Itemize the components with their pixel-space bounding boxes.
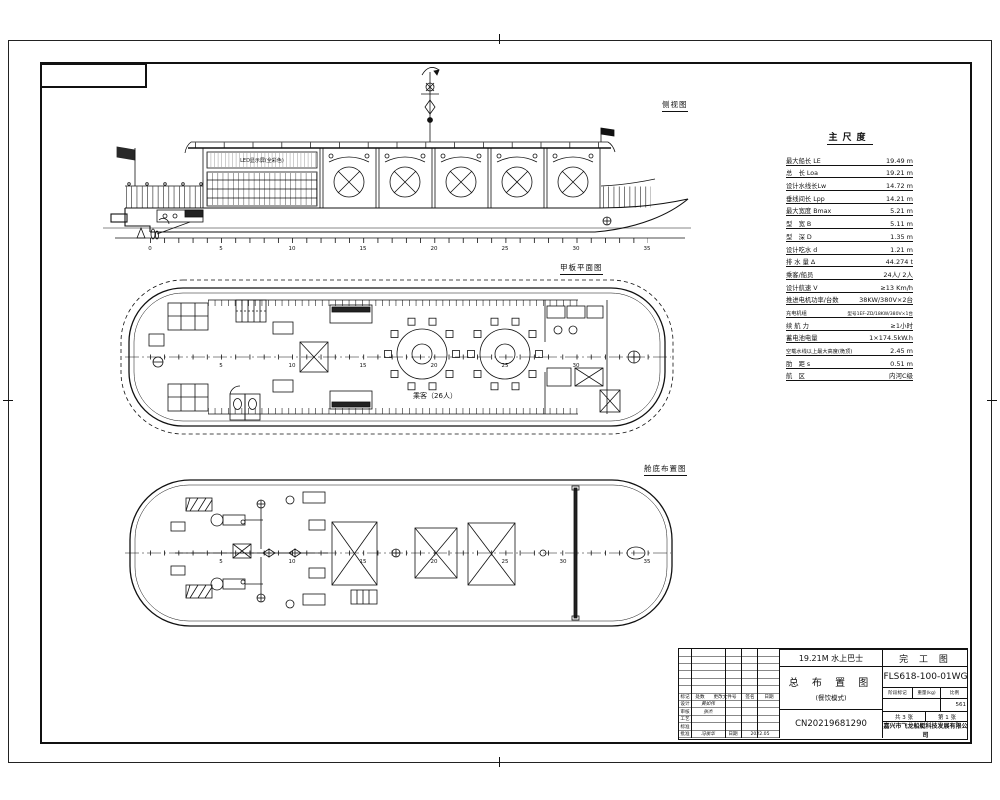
revision-header: 标记 处数 更改文件号 签名 日期 xyxy=(679,694,779,701)
aux-equipment xyxy=(171,492,377,605)
stern-flag-icon xyxy=(117,147,135,186)
svg-text:15: 15 xyxy=(360,559,367,565)
spec-row: 充电机组型号1EF-ZD/18KW/380V×1台 xyxy=(786,305,913,318)
led-screen-note: LED显示屏(全彩色) xyxy=(240,157,284,164)
scale-header: 比例 xyxy=(940,687,968,698)
center-mark xyxy=(499,34,500,44)
spec-row: 设计航速 V≥13 Km/h xyxy=(786,280,913,293)
mast-icon xyxy=(421,67,439,142)
svg-text:10: 10 xyxy=(289,363,296,369)
spec-row: 设计水线长Lw14.72 m xyxy=(786,178,913,191)
signature-row: 设计 黄如伟 xyxy=(679,701,779,708)
spec-row: 排 水 量 Δ44.274 t xyxy=(786,255,913,268)
sheet-page: 第 1 张 xyxy=(925,711,968,721)
spec-row: 最大宽度 Bmax5.21 m xyxy=(786,204,913,217)
bow-railing xyxy=(601,179,655,197)
svg-text:25: 25 xyxy=(502,559,509,565)
center-mark xyxy=(987,400,997,401)
signature-row: 批准 冯俊华 日期 2022.05 xyxy=(679,731,779,738)
svg-text:10: 10 xyxy=(289,246,296,252)
spec-row: 乘客/船员24人/ 2人 xyxy=(786,267,913,280)
aft-equipment xyxy=(600,390,620,412)
svg-text:20: 20 xyxy=(431,246,438,252)
spec-row: 蓄电池电量1×174.5kW.h xyxy=(786,331,913,344)
company-name: 嘉兴市飞龙船艇科技发展有限公司 xyxy=(882,721,968,738)
drawing-title: 总 布 置 图 (餐饮模式) xyxy=(779,666,882,709)
weight-header: 重量(kg) xyxy=(912,687,940,698)
spec-row: 航 区内河C级 xyxy=(786,369,913,382)
window-bays xyxy=(329,154,593,197)
svg-text:5: 5 xyxy=(219,246,223,252)
svg-text:20: 20 xyxy=(431,559,438,565)
title-block: 标记 处数 更改文件号 签名 日期 设计 黄如伟 审核 张杰 工艺 标准 xyxy=(678,648,968,740)
bow-fitting xyxy=(628,351,640,363)
spec-row: 推进电机功率/台数38KW/380V×2台 xyxy=(786,293,913,306)
spec-table-title: 主尺度 xyxy=(827,130,873,145)
svg-text:35: 35 xyxy=(644,559,651,565)
revision-grid: 标记 处数 更改文件号 签名 日期 设计 黄如伟 审核 张杰 工艺 标准 xyxy=(679,649,779,738)
center-mark xyxy=(499,757,500,767)
stern-railing xyxy=(125,183,203,197)
center-mark xyxy=(3,400,13,401)
spec-row: 型 宽 B5.11 m xyxy=(786,216,913,229)
valves-piping xyxy=(175,508,328,594)
drawing-sheet: 侧视图 甲板平面图 舱底布置图 xyxy=(0,0,1000,800)
roof xyxy=(185,142,615,153)
spec-row: 肋 距 s0.51 m xyxy=(786,356,913,369)
frame-ruler xyxy=(115,238,685,241)
drawing-subtitle: (餐饮模式) xyxy=(815,692,846,702)
deck-plan-drawing: 5 10 15 20 25 30 乘客（26人） xyxy=(113,272,683,442)
spec-row: 空载水线以上最大高度(桅顶)2.45 m xyxy=(786,343,913,356)
drawing-number: FLS618-100-01WG xyxy=(882,666,968,687)
serial-number: CN20219681290 xyxy=(779,709,882,738)
scale-value: 561 xyxy=(940,698,968,711)
spec-row: 设计吃水 d1.21 m xyxy=(786,242,913,255)
spec-row: 型 深 D1.35 m xyxy=(786,229,913,242)
svg-text:35: 35 xyxy=(644,246,651,252)
svg-text:15: 15 xyxy=(360,363,367,369)
dining-table xyxy=(385,318,460,390)
propulsion-gear xyxy=(137,210,203,239)
svg-text:25: 25 xyxy=(502,363,509,369)
roof-flag-icon xyxy=(601,128,614,142)
svg-text:5: 5 xyxy=(219,363,223,369)
helm-console xyxy=(149,334,164,367)
svg-text:10: 10 xyxy=(289,559,296,565)
stage-mark-header: 阶段标记 xyxy=(882,687,912,698)
signature-row: 标准 xyxy=(679,724,779,731)
signature-row: 审核 张杰 xyxy=(679,709,779,716)
main-dimensions-table: 主尺度 最大船长 LE19.49 m 总 长 Loa19.21 m 设计水线长L… xyxy=(786,130,913,381)
deck-capacity-note: 乘客（26人） xyxy=(413,391,457,400)
svg-text:20: 20 xyxy=(431,363,438,369)
svg-text:0: 0 xyxy=(148,246,152,252)
stairs xyxy=(236,300,266,322)
project-name: 19.21M 水上巴士 xyxy=(779,649,882,666)
svg-text:30: 30 xyxy=(573,363,580,369)
bilge-plan-drawing: 5 10 15 20 25 30 35 xyxy=(113,462,683,637)
stage-label: 完 工 图 xyxy=(882,649,968,666)
svg-text:5: 5 xyxy=(219,559,223,565)
frame-ruler-numbers: 0 5 10 15 20 25 30 35 xyxy=(148,246,651,252)
sheet-total: 共 3 张 xyxy=(882,711,925,721)
pumps xyxy=(257,496,294,608)
anchor-icon xyxy=(603,217,611,225)
spec-row: 续 航 力≥1小时 xyxy=(786,318,913,331)
wc-rooms xyxy=(230,386,260,420)
svg-text:30: 30 xyxy=(560,559,567,565)
svg-text:30: 30 xyxy=(573,246,580,252)
battery-banks xyxy=(186,498,212,598)
tanks xyxy=(332,522,515,585)
dining-table xyxy=(468,318,543,390)
svg-text:25: 25 xyxy=(502,246,509,252)
stage-value xyxy=(882,698,940,711)
side-view-drawing: 0 5 10 15 20 25 30 35 LED显示屏(全彩色) xyxy=(95,60,695,255)
bilge-frame-numbers: 5 10 15 20 25 30 35 xyxy=(219,559,651,565)
electric-motors xyxy=(211,514,263,590)
spec-row: 总 长 Loa19.21 m xyxy=(786,166,913,179)
spec-row: 最大船长 LE19.49 m xyxy=(786,153,913,166)
signature-row: 工艺 xyxy=(679,716,779,723)
svg-text:15: 15 xyxy=(360,246,367,252)
spec-row: 垂线间长 Lpp14.21 m xyxy=(786,191,913,204)
